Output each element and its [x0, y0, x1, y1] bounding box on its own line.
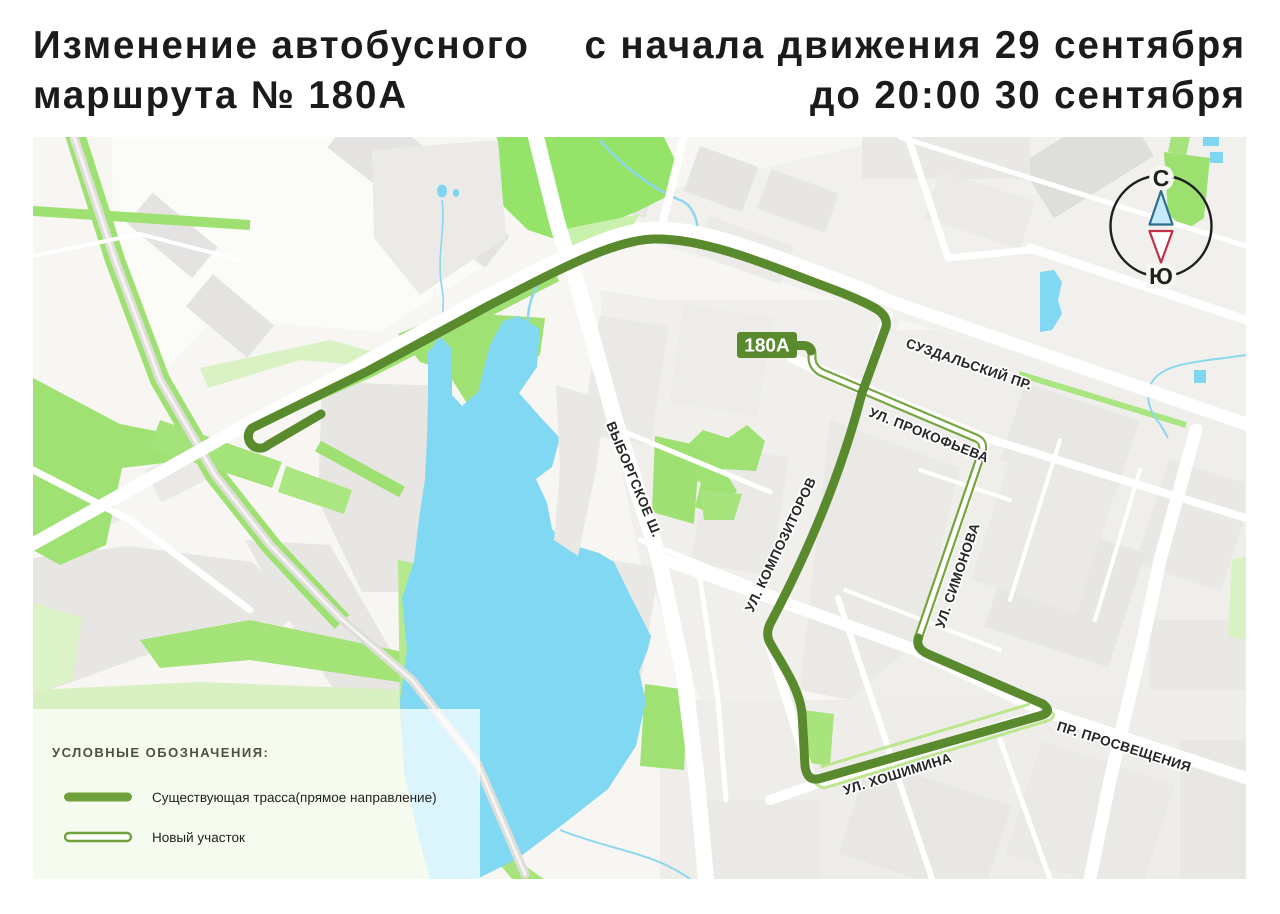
svg-text:Новый участок: Новый участок — [152, 830, 245, 845]
svg-text:Существующая трасса(прямое нап: Существующая трасса(прямое направление) — [152, 790, 437, 805]
svg-text:УСЛОВНЫЕ ОБОЗНАЧЕНИЯ:: УСЛОВНЫЕ ОБОЗНАЧЕНИЯ: — [52, 745, 269, 760]
svg-text:180А: 180А — [744, 335, 790, 356]
svg-text:Ю: Ю — [1149, 263, 1173, 289]
svg-text:С: С — [1153, 165, 1170, 191]
